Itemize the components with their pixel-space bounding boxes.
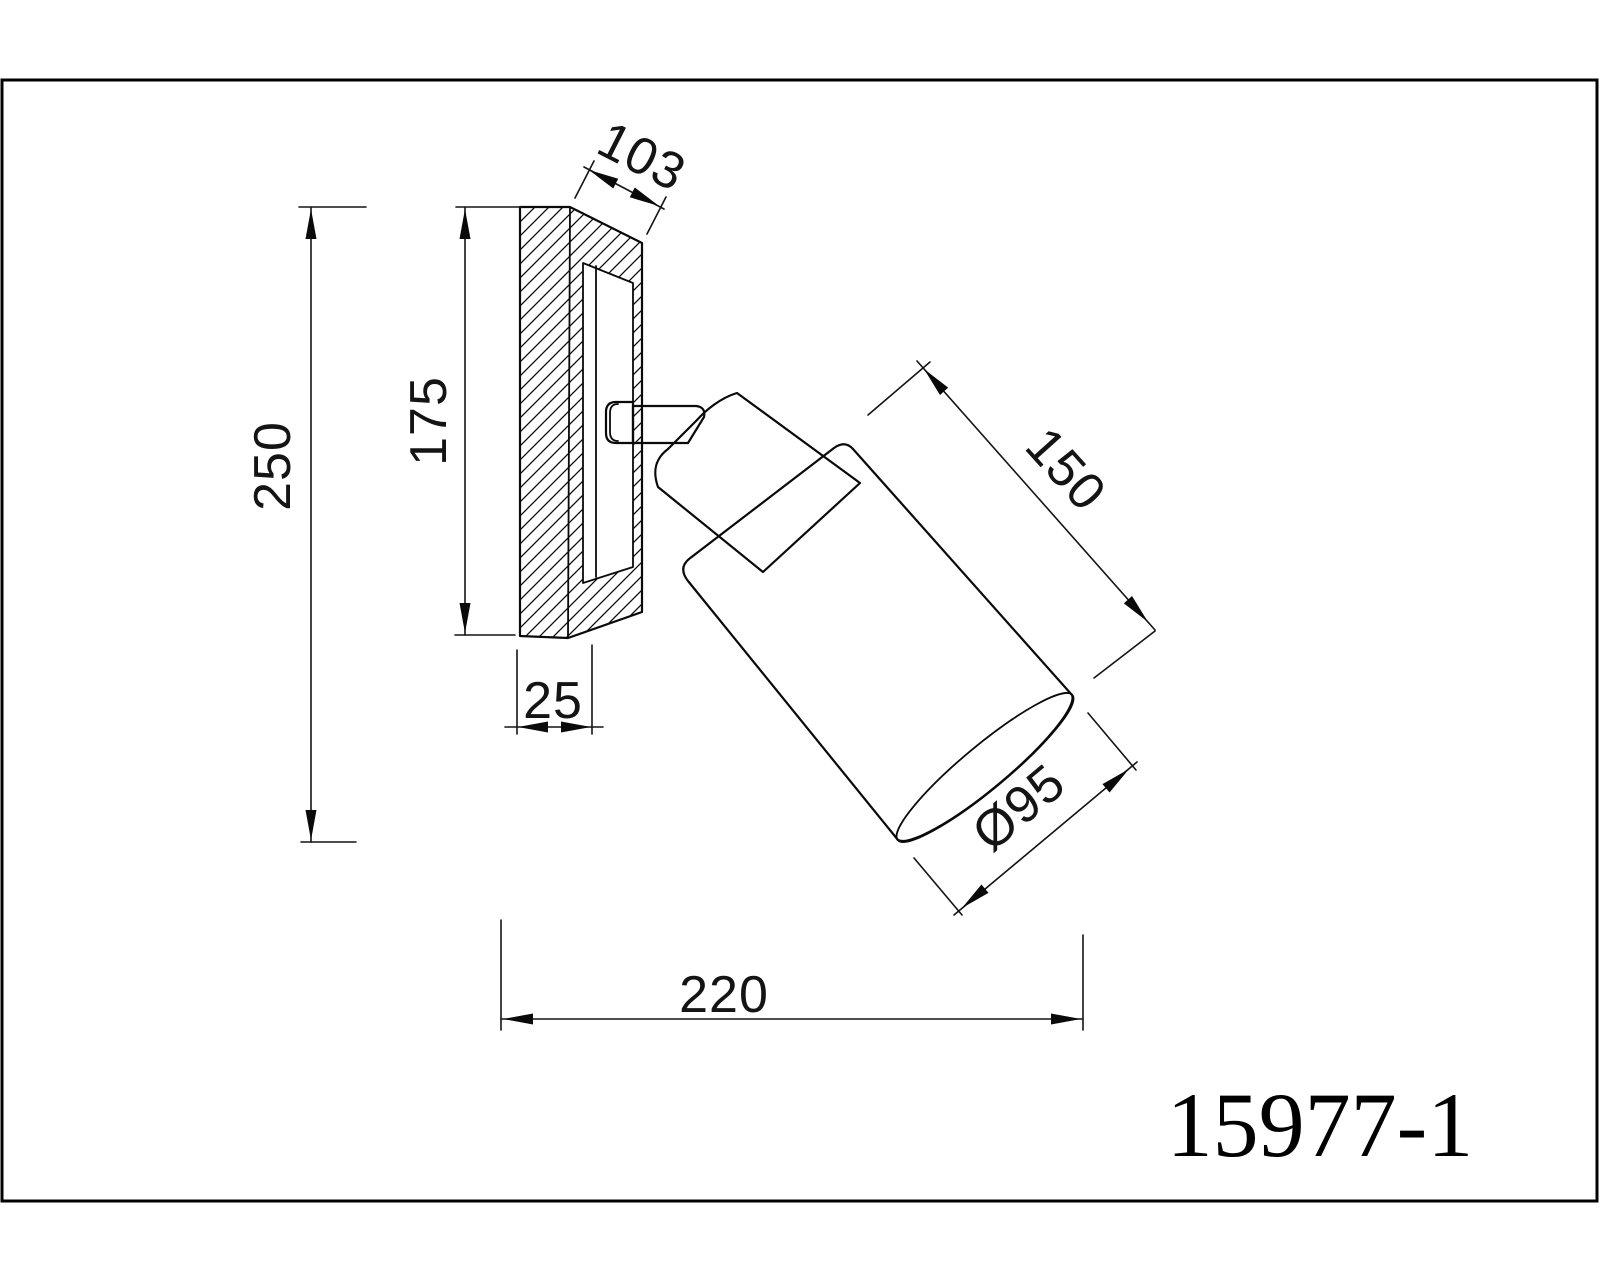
dimension-plate-thickness: 25: [505, 645, 603, 734]
dimension-overall-height: 250: [244, 207, 366, 842]
dimension-label-103: 103: [589, 111, 695, 203]
drawing-border-frame: [2, 80, 1597, 1201]
dimension-plate-depth: 103: [575, 111, 695, 234]
dimension-label-175: 175: [400, 376, 458, 466]
dimension-label-25: 25: [523, 672, 583, 730]
dimension-shade-diameter: Ø95: [914, 713, 1137, 915]
dimension-label-diameter-95: Ø95: [962, 753, 1077, 863]
dimension-plate-height: 175: [400, 207, 522, 635]
dimension-label-250: 250: [244, 421, 302, 511]
dimension-shade-length: 150: [868, 361, 1155, 678]
mounting-recess: [583, 263, 633, 583]
knob-flange-line: [610, 404, 618, 441]
model-number-label: 15977-1: [1167, 1074, 1474, 1176]
dimension-label-150: 150: [1014, 417, 1117, 523]
lamp-socket-arm: [655, 393, 860, 572]
dimension-label-220: 220: [679, 966, 769, 1024]
technical-drawing-canvas: 103 175 250 25: [0, 0, 1600, 1280]
pivot-knob: [606, 402, 633, 443]
wall-mounting-plate: [520, 207, 642, 638]
drawing-sheet: 103 175 250 25: [0, 0, 1600, 1280]
dimension-overall-projection: 220: [501, 920, 1083, 1030]
